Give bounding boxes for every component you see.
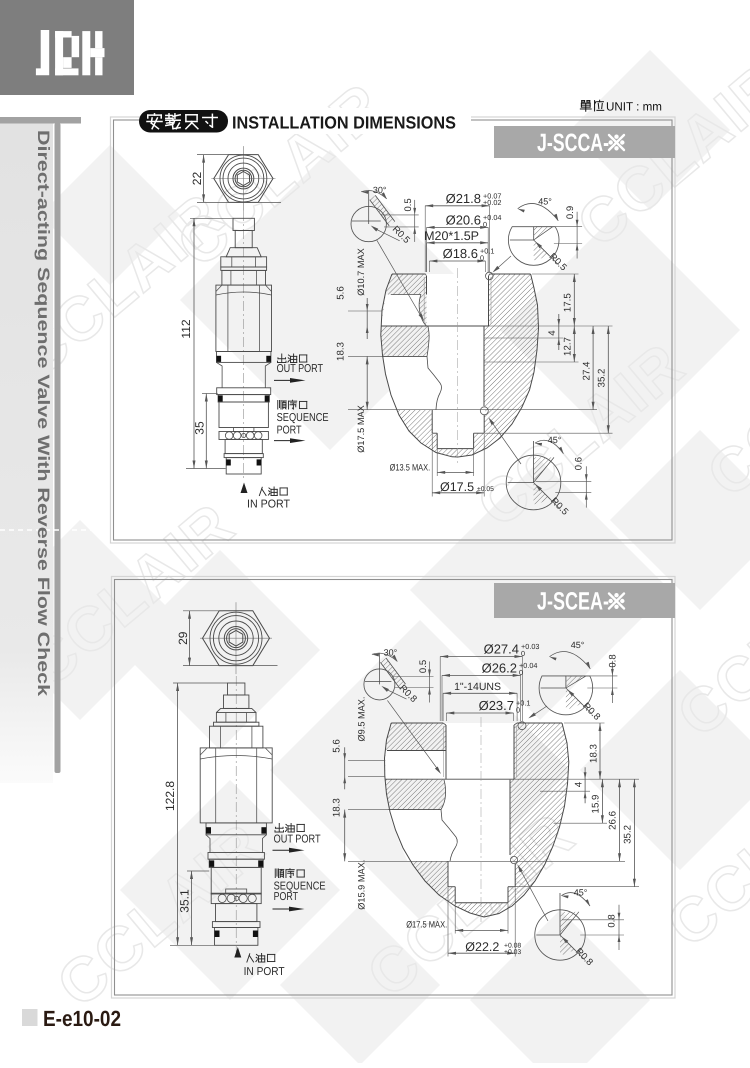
svg-text:35.2: 35.2 [597, 369, 608, 388]
svg-text:J-SCEA-: J-SCEA- [537, 588, 609, 616]
svg-text:0.5: 0.5 [418, 660, 429, 673]
svg-text:5.6: 5.6 [336, 286, 347, 299]
svg-text:0: 0 [483, 220, 487, 229]
svg-text:Ø23.7: Ø23.7 [479, 698, 514, 713]
svg-text:122.8: 122.8 [163, 781, 177, 811]
svg-text:Ø27.4: Ø27.4 [484, 642, 519, 657]
svg-text:Ø10.7 MAX: Ø10.7 MAX [356, 248, 366, 296]
svg-text:J-SCCA-: J-SCCA- [537, 129, 609, 157]
svg-text:Ø15.9 MAX.: Ø15.9 MAX. [357, 860, 367, 910]
svg-text:Ø20.6: Ø20.6 [446, 212, 481, 227]
svg-text:18.3: 18.3 [336, 342, 347, 361]
svg-text:0.5: 0.5 [403, 198, 414, 211]
svg-text:18.3: 18.3 [332, 798, 343, 817]
svg-text:Ø18.6: Ø18.6 [443, 246, 478, 261]
svg-text:112: 112 [179, 319, 193, 338]
svg-text:0: 0 [480, 253, 484, 262]
svg-text:15.9: 15.9 [591, 795, 602, 814]
svg-text:Ø9.5 MAX.: Ø9.5 MAX. [357, 697, 367, 742]
svg-text:0: 0 [519, 668, 523, 677]
svg-text:12.7: 12.7 [563, 337, 574, 356]
svg-text:PORT: PORT [277, 424, 302, 436]
svg-text:+0.02: +0.02 [483, 198, 501, 207]
svg-text:35: 35 [193, 421, 207, 435]
svg-text:0: 0 [516, 705, 520, 714]
svg-text:5.6: 5.6 [332, 739, 343, 752]
svg-text:0: 0 [521, 649, 525, 658]
svg-text:35.1: 35.1 [178, 889, 192, 913]
svg-text:27.4: 27.4 [581, 361, 592, 380]
svg-text:Ø13.5 MAX.: Ø13.5 MAX. [390, 463, 431, 473]
svg-text:±0.05: ±0.05 [477, 486, 494, 493]
svg-text:UNIT : mm: UNIT : mm [606, 100, 662, 114]
svg-text:0.9: 0.9 [565, 206, 576, 219]
svg-text:Ø21.8: Ø21.8 [446, 191, 481, 206]
svg-text:M20*1.5P: M20*1.5P [424, 229, 479, 243]
svg-text:Ø26.2: Ø26.2 [482, 660, 517, 675]
svg-text:45°: 45° [571, 640, 585, 650]
svg-text:30°: 30° [373, 185, 387, 195]
svg-text:OUT PORT: OUT PORT [277, 363, 324, 375]
svg-text:Ø17.5 MAX.: Ø17.5 MAX. [406, 920, 447, 930]
svg-text:0.6: 0.6 [574, 457, 585, 470]
svg-text:4: 4 [573, 781, 584, 787]
svg-text:35.2: 35.2 [623, 825, 634, 844]
svg-text:1"-14UNS: 1"-14UNS [454, 681, 501, 693]
svg-text:INSTALLATION DIMENSIONS: INSTALLATION DIMENSIONS [232, 113, 456, 133]
svg-text:SEQUENCE: SEQUENCE [277, 412, 329, 424]
svg-text:PORT: PORT [274, 891, 299, 903]
svg-text:Ø22.2: Ø22.2 [465, 940, 499, 954]
svg-text:17.5: 17.5 [563, 293, 574, 312]
svg-text:45°: 45° [574, 888, 588, 898]
svg-text:0.8: 0.8 [607, 914, 618, 927]
svg-text:+0.03: +0.03 [504, 949, 521, 956]
svg-text:29: 29 [176, 631, 190, 645]
svg-text:E-e10-02: E-e10-02 [43, 1006, 121, 1031]
svg-text:45°: 45° [548, 435, 562, 445]
svg-text:18.3: 18.3 [589, 744, 600, 763]
svg-text:4: 4 [547, 330, 558, 336]
svg-text:Ø17.5 MAX: Ø17.5 MAX [356, 405, 366, 453]
svg-text:0.8: 0.8 [608, 654, 619, 667]
svg-text:OUT PORT: OUT PORT [274, 834, 321, 846]
svg-text:IN PORT: IN PORT [247, 499, 290, 511]
svg-text:Ø17.5: Ø17.5 [440, 480, 474, 494]
svg-text:26.6: 26.6 [608, 811, 619, 830]
svg-text:IN PORT: IN PORT [244, 966, 285, 978]
svg-text:22: 22 [190, 172, 204, 186]
svg-text:45°: 45° [538, 197, 552, 207]
svg-text:30°: 30° [384, 647, 398, 657]
svg-text:Direct-acting Sequence Valve W: Direct-acting Sequence Valve With Revers… [34, 130, 52, 697]
